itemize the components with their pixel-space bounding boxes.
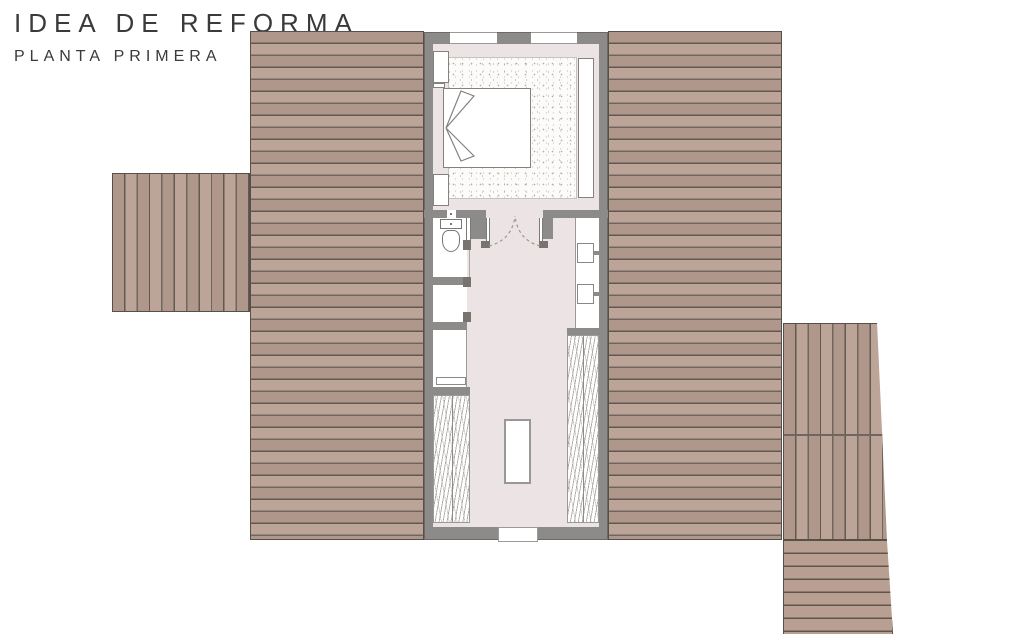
door-swing-left (489, 216, 515, 246)
duvet-fold-bottom (446, 128, 474, 161)
duvet-fold-top (446, 91, 474, 128)
plan-overlay-graphics (0, 0, 1024, 634)
door-swing-right (515, 216, 540, 246)
floor-plan-canvas: IDEA DE REFORMA PLANTA PRIMERA (0, 0, 1024, 634)
